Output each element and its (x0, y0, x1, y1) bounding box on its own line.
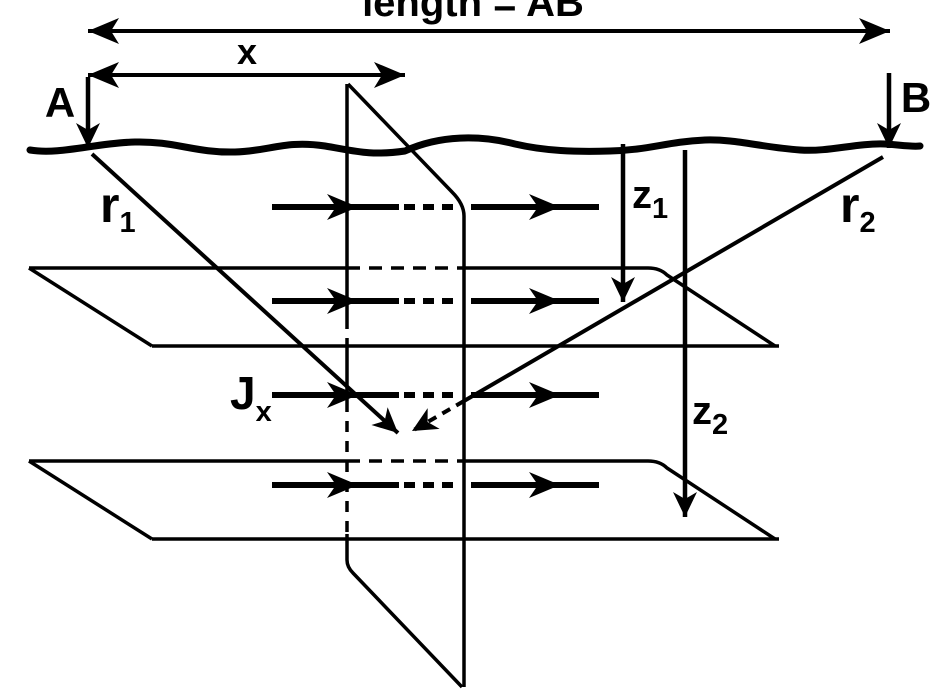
vertical-current-sheet (347, 84, 464, 687)
ground-surface-line (30, 138, 920, 153)
current-arrow-row-4 (272, 472, 599, 498)
electrode-b-label: B (901, 74, 931, 121)
r2-ray-line (464, 157, 883, 401)
layer-plane-2 (29, 461, 779, 539)
depth-z2: z2 (685, 150, 728, 517)
r2-ray-hidden-segment (412, 401, 464, 431)
figure-canvas: length = AB x A B (0, 0, 951, 695)
electrode-a: A (45, 77, 88, 148)
electrode-b: B (889, 73, 931, 148)
layer2-left-edge (29, 461, 152, 539)
layer-plane-1 (29, 268, 779, 346)
ab-length-label: length = AB (362, 0, 584, 25)
sheet-bottom-edge (347, 534, 462, 687)
x-dimension: x (88, 31, 405, 75)
current-arrow-row-1 (272, 194, 599, 220)
sheet-top-and-back-edge (348, 84, 464, 687)
layer1-right-edge (464, 268, 775, 346)
resistivity-diagram: length = AB x A B (0, 0, 951, 695)
current-arrow-row-3: Jx (230, 367, 599, 428)
jx-label: Jx (230, 367, 272, 428)
r2-label: r2 (840, 177, 876, 239)
z1-label: z1 (632, 173, 668, 225)
x-label: x (237, 31, 257, 72)
layer1-left-edge (29, 268, 152, 346)
ab-dimension: length = AB (88, 0, 890, 31)
electrode-a-label: A (45, 79, 75, 126)
depth-z1: z1 (623, 144, 668, 302)
current-arrow-row-2 (272, 288, 599, 314)
layer2-right-edge (464, 461, 775, 539)
z2-label: z2 (692, 389, 728, 441)
